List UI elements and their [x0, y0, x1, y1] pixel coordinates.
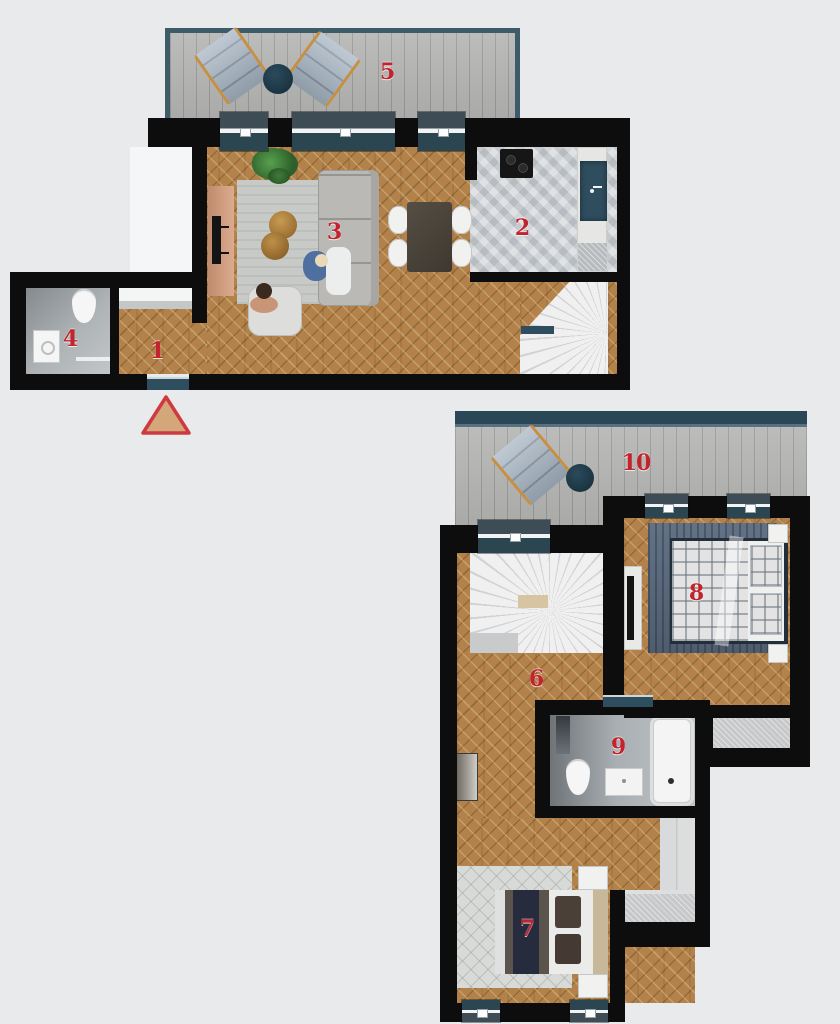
potted-plant-leaf: [268, 168, 290, 184]
bed-double: [495, 890, 608, 974]
shower-panel: [556, 716, 570, 754]
tv-screen: [212, 216, 221, 264]
dining-chair: [451, 239, 472, 267]
hallway-wardrobe: [119, 288, 192, 309]
person-in-armchair-head: [256, 283, 272, 299]
wall: [465, 147, 477, 180]
wall: [470, 272, 617, 282]
dining-chair: [388, 239, 409, 267]
stairs-handrail: [521, 326, 554, 334]
wall: [440, 525, 457, 1020]
dining-chair: [451, 206, 472, 234]
nightstand: [578, 974, 608, 998]
kitchen-mat: [578, 243, 607, 271]
tv-screen: [627, 576, 634, 640]
room-label-4: 4: [63, 328, 77, 350]
nightstand: [578, 866, 608, 890]
sink-faucet-dot: [590, 189, 594, 193]
stairs-newel: [518, 595, 548, 608]
wall: [610, 922, 710, 947]
window: [645, 494, 688, 518]
terrace-10-railing: [455, 411, 807, 424]
bed-pillow: [751, 594, 781, 634]
bathroom-9-door: [603, 695, 653, 707]
bed-pillow: [555, 934, 581, 964]
wall: [695, 748, 810, 767]
shower-glass: [76, 357, 110, 361]
cooktop: [500, 149, 533, 178]
cooktop-burner: [506, 155, 516, 165]
bed-pillow: [751, 546, 781, 586]
wall: [10, 374, 147, 390]
washer-door: [41, 341, 55, 355]
cooktop-burner: [518, 163, 528, 173]
bathtub: [650, 716, 694, 806]
wall: [192, 147, 207, 323]
person-blanket: [326, 247, 351, 295]
wall: [617, 118, 630, 390]
window: [220, 112, 268, 151]
room-label-6: 6: [529, 668, 543, 690]
wall: [110, 288, 119, 374]
bathtub-drain: [668, 778, 674, 784]
dining-table: [407, 202, 452, 272]
wall: [189, 374, 630, 390]
window: [727, 494, 770, 518]
exterior-niche: [130, 147, 192, 272]
terrace-side-table: [263, 64, 293, 94]
wardrobe: [660, 818, 695, 890]
wall: [610, 890, 625, 1005]
open-door-leaf: [457, 754, 477, 800]
staircase-lower: [470, 553, 608, 653]
entrance-door-sill: [147, 377, 189, 390]
window: [418, 112, 465, 151]
dining-chair: [388, 206, 409, 234]
wall: [603, 496, 810, 518]
room-label-9: 9: [611, 736, 625, 758]
window: [478, 520, 550, 553]
wall: [790, 496, 810, 767]
room-label-1: 1: [150, 340, 164, 362]
storage-closet: [713, 718, 790, 748]
room-label-10: 10: [622, 452, 651, 474]
vanity-faucet: [622, 779, 626, 783]
stairs-landing: [470, 633, 518, 653]
staircase-upper: [520, 282, 608, 374]
room-label-2: 2: [515, 217, 529, 239]
window: [570, 1000, 608, 1022]
wardrobe-low: [618, 890, 695, 922]
wall: [10, 272, 192, 288]
entrance-triangle-marker: [140, 394, 192, 436]
wall: [10, 272, 26, 390]
bed-headboard: [593, 890, 608, 974]
bed-double: [670, 538, 788, 644]
terrace-side-table: [566, 464, 594, 492]
room-label-3: 3: [327, 221, 341, 243]
room-label-5: 5: [380, 61, 394, 83]
wall: [535, 806, 710, 818]
wall: [535, 700, 550, 818]
room-label-8: 8: [689, 582, 703, 604]
coffee-table: [261, 232, 289, 260]
nightstand: [768, 644, 788, 663]
balcony-door-window: [292, 112, 395, 151]
tv-bracket: [219, 226, 229, 228]
wall: [695, 700, 710, 818]
person-head: [315, 254, 328, 267]
tv-bracket: [219, 252, 229, 254]
bed-footboard: [495, 890, 505, 974]
window: [462, 1000, 500, 1022]
wall: [603, 518, 624, 712]
room-label-7: 7: [520, 918, 534, 940]
bed-pillow: [555, 896, 581, 928]
floorplan-canvas: 5 2 3 4 1: [0, 0, 840, 1024]
nightstand: [768, 524, 788, 543]
sink-faucet: [593, 186, 602, 188]
